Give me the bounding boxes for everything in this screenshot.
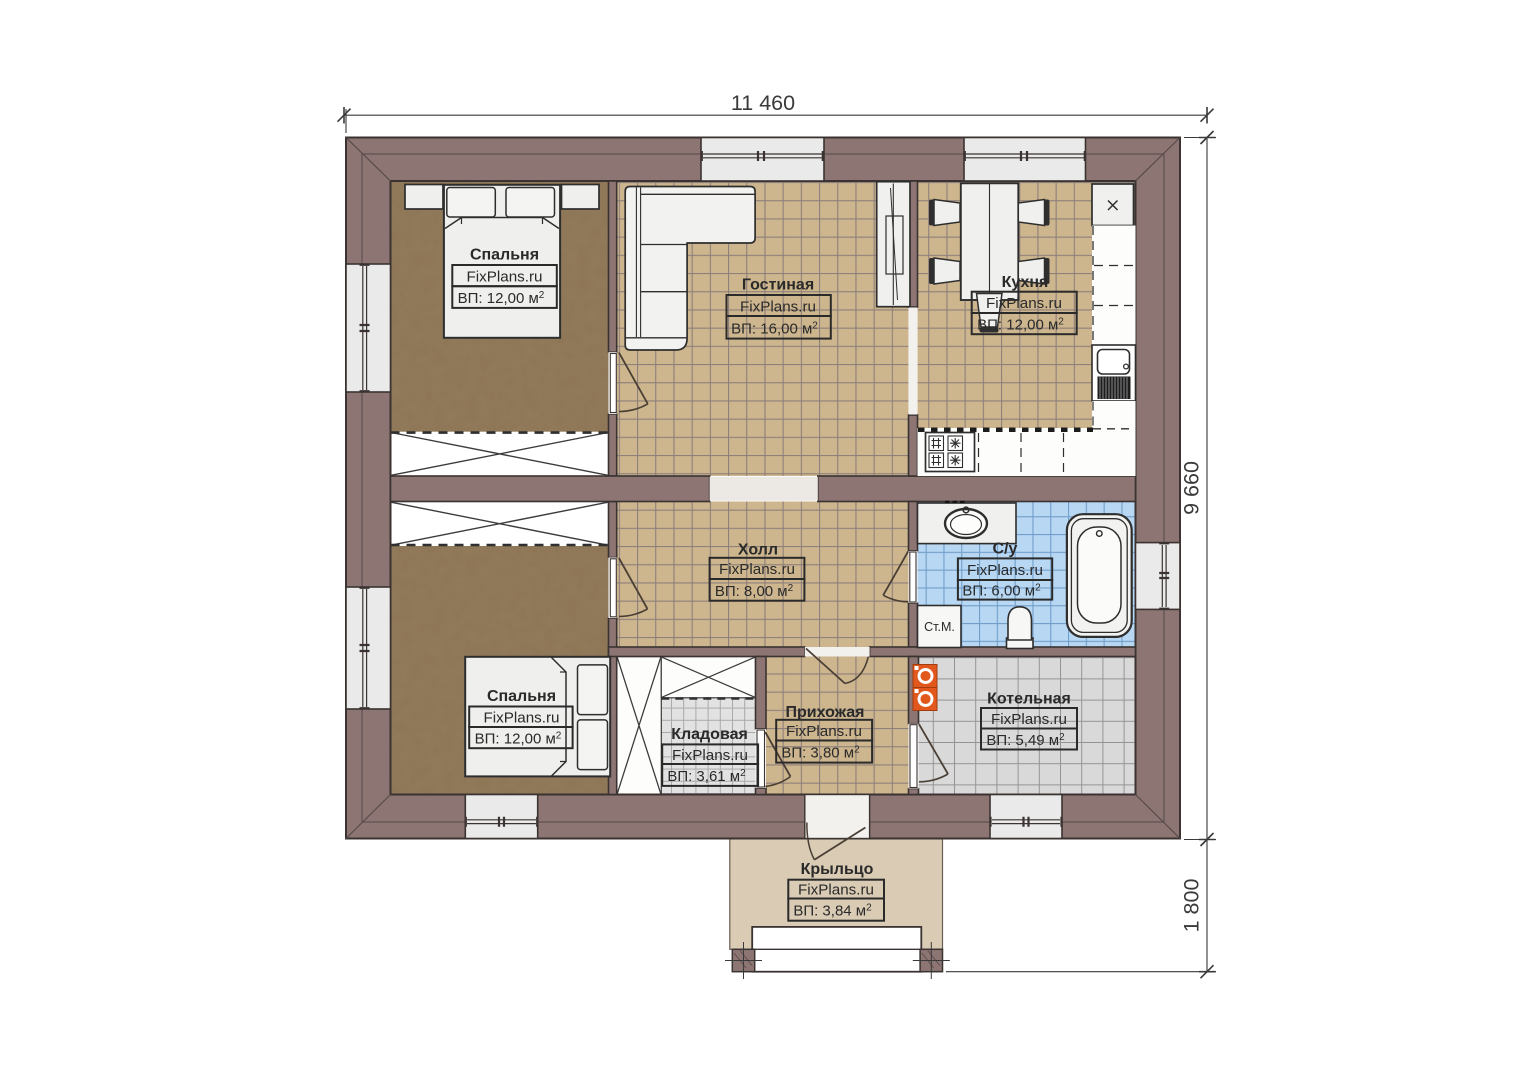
svg-text:ВП: 12,00 м2: ВП: 12,00 м2 (475, 731, 562, 748)
svg-text:FixPlans.ru: FixPlans.ru (740, 299, 816, 316)
svg-text:ВП: 12,00 м2: ВП: 12,00 м2 (458, 290, 545, 307)
svg-text:11 460: 11 460 (731, 91, 795, 115)
svg-text:Холл: Холл (738, 542, 778, 559)
svg-text:Спальня: Спальня (487, 688, 556, 705)
svg-text:Кладовая: Кладовая (671, 726, 748, 743)
svg-text:ВП: 3,61 м2: ВП: 3,61 м2 (667, 768, 746, 785)
svg-text:Прихожая: Прихожая (786, 704, 865, 721)
svg-text:ВП: 3,84 м2: ВП: 3,84 м2 (793, 903, 872, 920)
svg-text:Гостиная: Гостиная (742, 277, 814, 294)
svg-text:Котельная: Котельная (987, 691, 1071, 708)
svg-text:ВП: 12,00 м2: ВП: 12,00 м2 (977, 317, 1064, 334)
svg-text:Крыльцо: Крыльцо (801, 861, 874, 878)
svg-text:Кухня: Кухня (1002, 274, 1049, 291)
svg-text:ВП: 5,49 м2: ВП: 5,49 м2 (986, 732, 1065, 749)
svg-text:FixPlans.ru: FixPlans.ru (967, 562, 1043, 579)
svg-text:FixPlans.ru: FixPlans.ru (672, 747, 748, 764)
svg-text:FixPlans.ru: FixPlans.ru (484, 710, 560, 727)
svg-text:Спальня: Спальня (470, 247, 539, 264)
svg-text:ВП: 3,80 м2: ВП: 3,80 м2 (781, 745, 860, 762)
svg-text:FixPlans.ru: FixPlans.ru (986, 295, 1062, 312)
svg-text:С/у: С/у (993, 541, 1018, 558)
svg-text:FixPlans.ru: FixPlans.ru (991, 711, 1067, 728)
svg-text:9 660: 9 660 (1180, 461, 1204, 515)
svg-text:FixPlans.ru: FixPlans.ru (786, 723, 862, 740)
svg-text:FixPlans.ru: FixPlans.ru (467, 269, 543, 286)
svg-text:ВП: 6,00 м2: ВП: 6,00 м2 (962, 583, 1041, 600)
svg-text:ВП: 8,00 м2: ВП: 8,00 м2 (715, 583, 794, 600)
svg-text:1 800: 1 800 (1180, 879, 1204, 933)
svg-text:FixPlans.ru: FixPlans.ru (719, 561, 795, 578)
svg-text:Ст.М.: Ст.М. (924, 620, 955, 634)
svg-text:FixPlans.ru: FixPlans.ru (798, 882, 874, 899)
svg-text:ВП: 16,00 м2: ВП: 16,00 м2 (731, 321, 818, 338)
